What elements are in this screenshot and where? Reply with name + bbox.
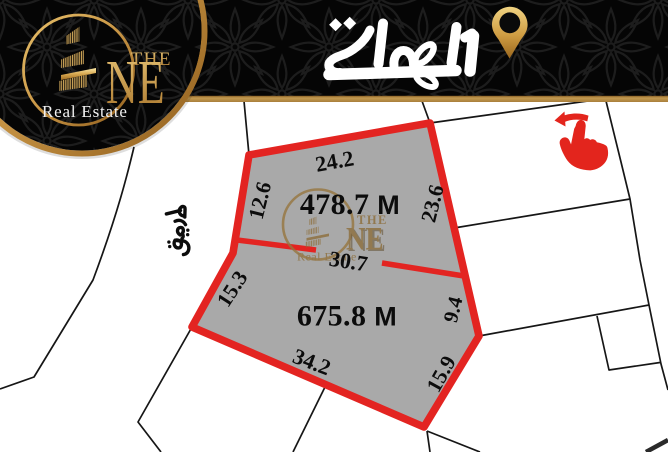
svg-text:Real Estate: Real Estate <box>42 102 128 121</box>
svg-text:675.8 M: 675.8 M <box>297 300 397 333</box>
svg-text:478.7 M: 478.7 M <box>300 188 400 221</box>
